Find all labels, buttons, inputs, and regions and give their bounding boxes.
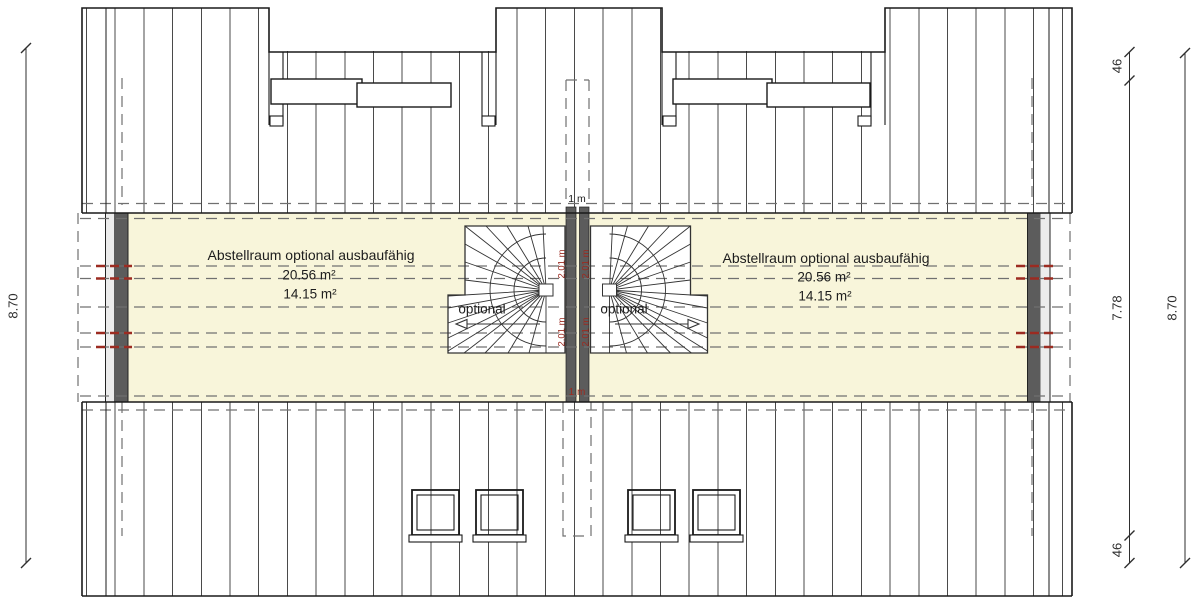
dimension-right-inner: 7.78 <box>1111 295 1124 320</box>
right-room-area-gross: 20.56 m² <box>797 270 850 284</box>
optional-label-left: optional <box>458 302 505 316</box>
headroom-label-right-lower: 2.01 m <box>581 317 591 346</box>
skylight <box>625 490 678 542</box>
window-band-right <box>673 79 870 107</box>
skylight <box>409 490 462 542</box>
roof-outlines <box>82 8 1072 596</box>
headroom-label-right-upper: 2.01 m <box>581 249 591 278</box>
left-room-area-net: 14.15 m² <box>283 287 336 301</box>
skylights-group <box>409 490 743 542</box>
dashed-hidden-lines <box>78 78 1072 536</box>
skylight <box>690 490 743 542</box>
dimension-right-upper-offset: 46 <box>1111 59 1124 73</box>
headroom-label-left-lower: 2.01 m <box>557 317 567 346</box>
left-room-title: Abstellraum optional ausbaufähig <box>207 248 414 262</box>
floor-plan: Abstellraum optional ausbaufähig 20.56 m… <box>0 0 1200 600</box>
one-meter-label-bottom: 1 m <box>569 388 586 398</box>
optional-label-right: optional <box>600 302 647 316</box>
headroom-label-left-upper: 2.01 m <box>557 249 567 278</box>
right-room-title: Abstellraum optional ausbaufähig <box>722 251 929 265</box>
skylight <box>473 490 526 542</box>
plan-linework <box>0 0 1200 600</box>
left-room-area-gross: 20.56 m² <box>282 268 335 282</box>
right-room-area-net: 14.15 m² <box>798 289 851 303</box>
window-band-left <box>271 79 451 107</box>
dimension-right-total: 8.70 <box>1166 295 1179 320</box>
dimension-left-total: 8.70 <box>7 293 20 318</box>
party-wall <box>566 207 589 402</box>
one-meter-label-top: 1 m <box>568 194 586 205</box>
dimension-right-lower-offset: 46 <box>1111 543 1124 557</box>
